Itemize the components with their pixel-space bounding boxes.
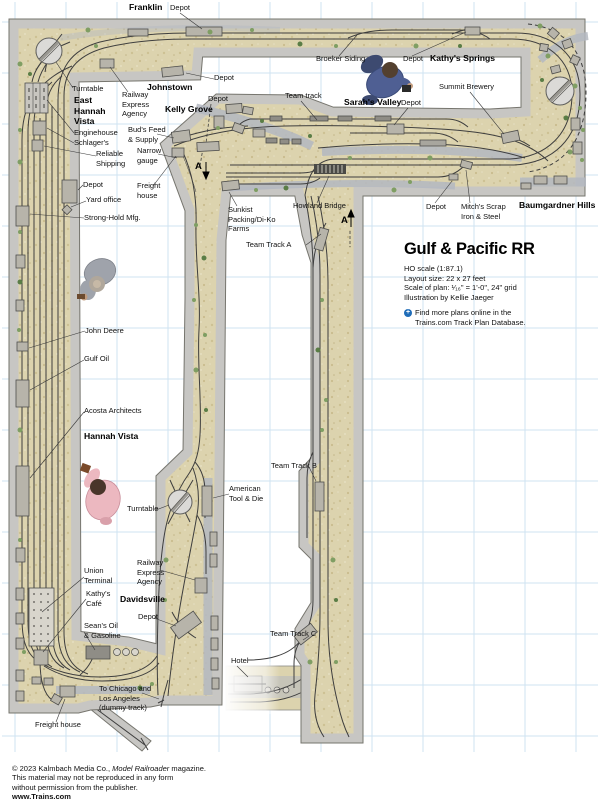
seans-oil-building: [86, 646, 110, 659]
freight-house-building-bottom: [60, 686, 75, 697]
kathys-cafe-building: [34, 650, 48, 665]
yard-depot-building: [62, 180, 77, 203]
layout-size-line: Layout size: 22 x 27 feet: [404, 274, 589, 284]
freight-house-building-top: [172, 148, 184, 157]
track-plan-drawing: [0, 0, 600, 810]
turntable-baumgardner: [546, 77, 574, 105]
ho-scale-line: HO scale (1:87.1): [404, 264, 589, 274]
sunkist-building: [222, 180, 240, 191]
copyright-line-2: This material may not be reproduced in a…: [12, 773, 206, 782]
benchwork: [14, 24, 580, 738]
acosta-building: [16, 466, 29, 516]
sarahs-valley-depot-building: [387, 124, 404, 134]
schlagers-building: [33, 121, 46, 135]
track-plan-page: Franklin Depot Turntable East Hannah Vis…: [0, 0, 600, 810]
buds-feed-building: [171, 130, 190, 143]
illustration-line: Illustration by Kellie Jaeger: [404, 293, 589, 303]
johnstown-depot-building: [162, 66, 184, 77]
reliable-shipping-building: [32, 140, 43, 151]
union-terminal-building: [29, 588, 54, 646]
page-title: Gulf & Pacific RR: [404, 240, 589, 259]
strong-hold-building: [16, 206, 29, 226]
franklin-depot-building: [186, 27, 222, 36]
seans-oil-tanks: [114, 649, 139, 656]
railway-express-building-top: [100, 59, 114, 68]
mitch-depot-building: [449, 174, 458, 180]
kelly-grove-depot-building: [197, 141, 219, 151]
copyright-line-3: without permission from the publisher.: [12, 783, 206, 792]
gulf-oil-building: [16, 380, 29, 407]
trains-url: www.Trains.com: [12, 792, 206, 801]
john-deere-building: [17, 342, 28, 351]
find-more-text-2: Trains.com Track Plan Database.: [415, 318, 526, 327]
faded-staging-section: [222, 662, 306, 714]
plus-circle-icon: +: [404, 309, 412, 317]
howland-bridge: [314, 164, 346, 174]
title-block: Gulf & Pacific RR HO scale (1:87.1) Layo…: [404, 240, 589, 328]
railway-express-building-bottom: [195, 578, 207, 593]
person-sarahs-valley: [358, 51, 413, 105]
magazine-name: Model Railroader: [112, 764, 169, 773]
scale-plan-line: Scale of plan: ¹⁄₁₆" = 1'-0", 24" grid: [404, 283, 589, 293]
find-more-text-1: Find more plans online in the: [415, 308, 511, 317]
copyright-block: © 2023 Kalmbach Media Co., Model Railroa…: [12, 764, 206, 801]
american-tool-die-building: [202, 486, 212, 516]
broeker-depot-building: [465, 27, 480, 35]
person-davidsville: [80, 463, 125, 525]
turntable-east-hannah-vista: [36, 38, 62, 64]
copyright-line-1: © 2023 Kalmbach Media Co., Model Railroa…: [12, 764, 206, 773]
team-track-b-building: [315, 482, 324, 511]
enginehouse-building: [25, 83, 48, 113]
turntable-davidsville: [168, 490, 192, 514]
